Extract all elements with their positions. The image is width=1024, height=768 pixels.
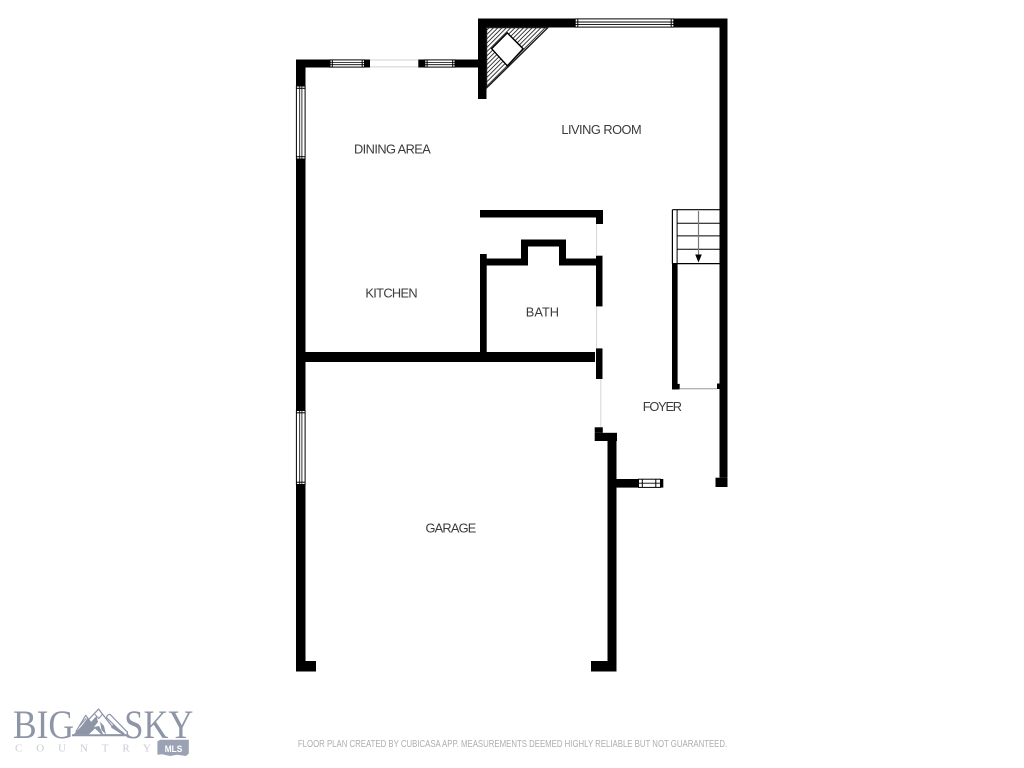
svg-text:FLOOR PLAN CREATED BY CUBICASA: FLOOR PLAN CREATED BY CUBICASA APP. MEAS… xyxy=(298,739,727,750)
svg-text:BATH: BATH xyxy=(526,305,560,320)
svg-text:BIG: BIG xyxy=(13,702,74,747)
svg-text:MLS: MLS xyxy=(165,744,183,754)
svg-text:KITCHEN: KITCHEN xyxy=(365,286,418,301)
svg-text:LIVING ROOM: LIVING ROOM xyxy=(561,122,642,137)
svg-text:DINING AREA: DINING AREA xyxy=(354,142,431,157)
svg-text:GARAGE: GARAGE xyxy=(426,521,477,536)
svg-text:FOYER: FOYER xyxy=(643,399,683,414)
